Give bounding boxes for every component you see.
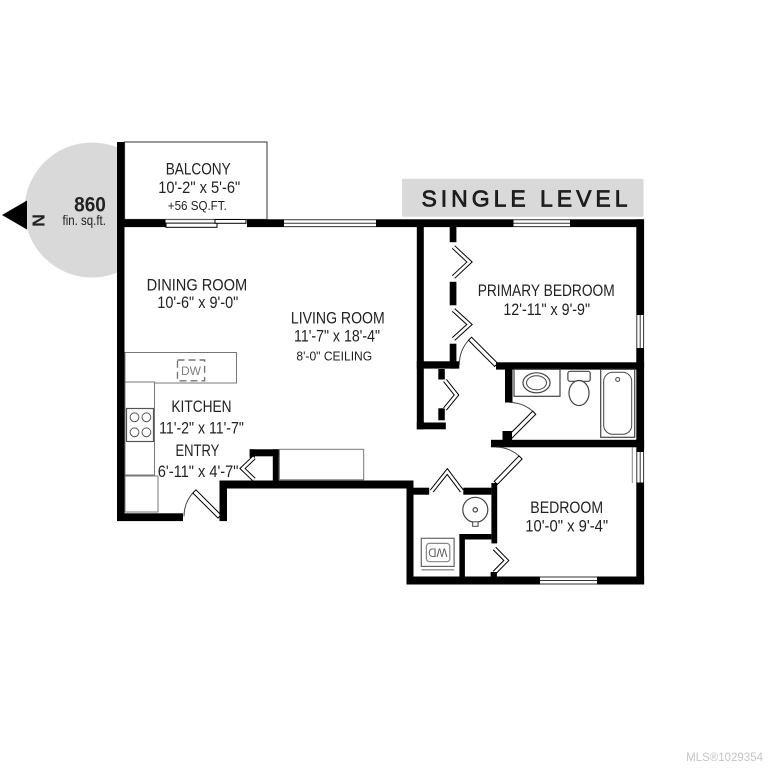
svg-text:BALCONY: BALCONY	[166, 160, 231, 178]
svg-text:12'-11" x 9'-9": 12'-11" x 9'-9"	[503, 300, 590, 319]
svg-text:fin. sq.ft.: fin. sq.ft.	[63, 212, 106, 228]
svg-text:SINGLE LEVEL: SINGLE LEVEL	[422, 186, 628, 212]
svg-text:BEDROOM: BEDROOM	[530, 499, 603, 517]
svg-text:10'-6" x 9'-0": 10'-6" x 9'-0"	[157, 293, 238, 312]
svg-text:11'-2" x 11'-7": 11'-2" x 11'-7"	[159, 419, 244, 438]
svg-text:6'-11" x 4'-7": 6'-11" x 4'-7"	[158, 462, 239, 481]
svg-text:LIVING ROOM: LIVING ROOM	[291, 310, 385, 328]
svg-text:N: N	[28, 214, 48, 227]
svg-text:ENTRY: ENTRY	[176, 442, 220, 460]
svg-text:11'-7" x 18'-4": 11'-7" x 18'-4"	[294, 327, 380, 346]
svg-text:PRIMARY BEDROOM: PRIMARY BEDROOM	[478, 282, 615, 300]
svg-text:10'-2" x 5'-6": 10'-2" x 5'-6"	[158, 178, 240, 197]
svg-text:DW: DW	[181, 364, 202, 378]
svg-text:+56 SQ.FT.: +56 SQ.FT.	[168, 199, 227, 213]
svg-text:8'-0" CEILING: 8'-0" CEILING	[296, 349, 372, 363]
svg-text:KITCHEN: KITCHEN	[171, 398, 231, 416]
svg-text:WD: WD	[428, 546, 447, 558]
svg-text:10'-0" x 9'-4": 10'-0" x 9'-4"	[525, 516, 608, 535]
svg-text:DINING ROOM: DINING ROOM	[147, 277, 248, 295]
svg-text:MLS®1029354: MLS®1029354	[686, 752, 763, 764]
